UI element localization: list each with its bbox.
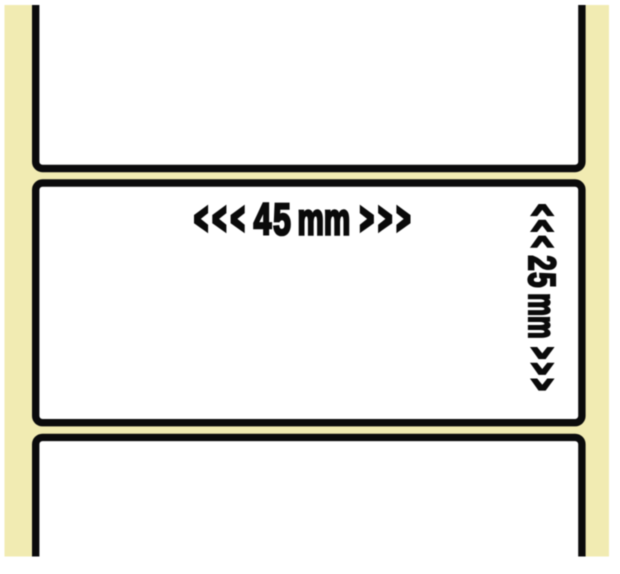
svg-text:mm: mm <box>521 293 563 338</box>
svg-text:mm: mm <box>298 195 351 244</box>
